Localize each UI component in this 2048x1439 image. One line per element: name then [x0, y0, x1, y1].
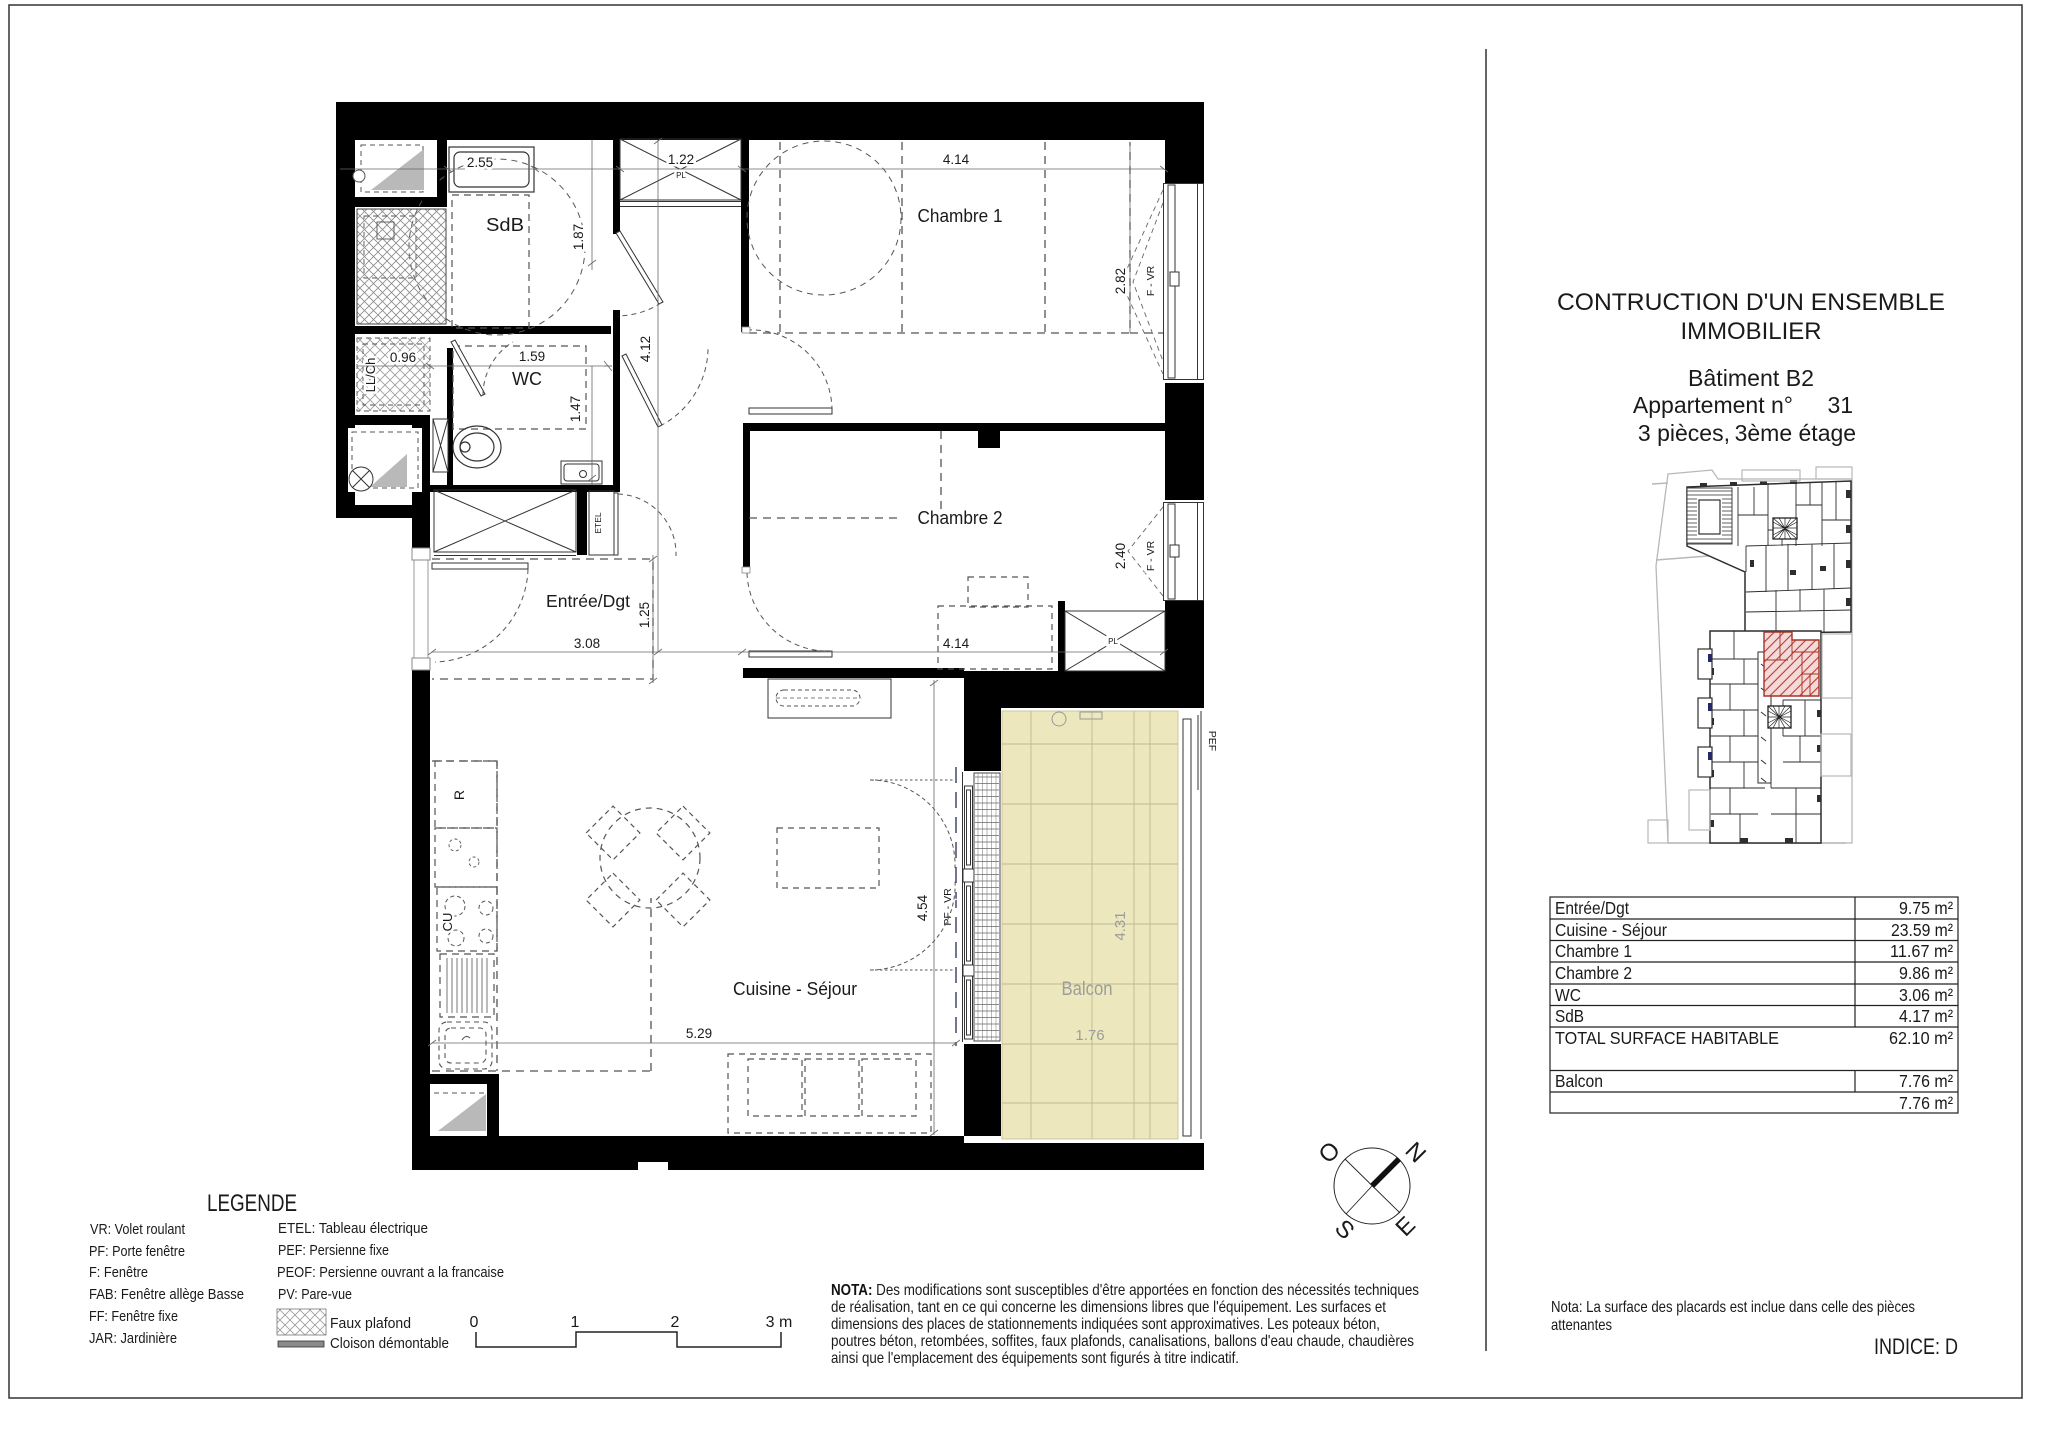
- svg-text:PEF: Persienne fixe: PEF: Persienne fixe: [278, 1242, 389, 1259]
- svg-text:0: 0: [470, 1314, 479, 1331]
- svg-text:4.14: 4.14: [943, 636, 970, 651]
- svg-text:Nota: La surface des placards: Nota: La surface des placards est inclue…: [1551, 1299, 1915, 1316]
- svg-text:11.67 m²: 11.67 m²: [1890, 941, 1953, 961]
- svg-text:1.47: 1.47: [568, 396, 583, 422]
- svg-text:1.22: 1.22: [668, 152, 694, 167]
- svg-text:4.54: 4.54: [915, 894, 930, 921]
- svg-text:3 pièces, 3ème étage: 3 pièces, 3ème étage: [1638, 420, 1856, 446]
- svg-text:IMMOBILIER: IMMOBILIER: [1681, 318, 1822, 345]
- svg-text:F - VR: F - VR: [1145, 265, 1157, 296]
- svg-text:2.55: 2.55: [467, 155, 493, 170]
- svg-text:attenantes: attenantes: [1551, 1317, 1612, 1334]
- svg-text:de réalisation, tant en ce qui: de réalisation, tant en ce qui concerne …: [831, 1299, 1386, 1316]
- svg-text:Cuisine - Séjour: Cuisine - Séjour: [1555, 920, 1667, 940]
- svg-text:3 m: 3 m: [766, 1314, 793, 1331]
- svg-text:Balcon: Balcon: [1062, 979, 1113, 1000]
- svg-text:CU: CU: [440, 913, 455, 932]
- svg-text:F - VR: F - VR: [1145, 540, 1157, 571]
- svg-text:Chambre 2: Chambre 2: [1555, 963, 1632, 983]
- svg-text:Entrée/Dgt: Entrée/Dgt: [1555, 898, 1629, 918]
- svg-text:CONTRUCTION D'UN ENSEMBLE: CONTRUCTION D'UN ENSEMBLE: [1557, 289, 1945, 316]
- svg-text:poutres béton, retombées, soff: poutres béton, retombées, soffites, faux…: [831, 1333, 1414, 1350]
- svg-text:1.25: 1.25: [637, 602, 652, 628]
- svg-text:LL/Ch: LL/Ch: [363, 358, 378, 393]
- svg-text:Chambre 1: Chambre 1: [1555, 941, 1632, 961]
- svg-text:SdB: SdB: [1555, 1006, 1584, 1026]
- svg-text:1.87: 1.87: [571, 224, 586, 250]
- svg-text:9.86 m²: 9.86 m²: [1899, 963, 1953, 983]
- svg-text:FAB: Fenêtre allège Basse: FAB: Fenêtre allège Basse: [89, 1286, 244, 1303]
- svg-text:4.12: 4.12: [638, 336, 653, 362]
- svg-text:1.76: 1.76: [1075, 1027, 1104, 1044]
- svg-text:Cloison démontable: Cloison démontable: [330, 1335, 449, 1352]
- svg-text:1: 1: [571, 1314, 580, 1331]
- svg-text:Cuisine - Séjour: Cuisine - Séjour: [733, 979, 857, 999]
- svg-text:5.29: 5.29: [686, 1026, 712, 1041]
- svg-text:FF: Fenêtre fixe: FF: Fenêtre fixe: [89, 1308, 178, 1325]
- svg-text:7.76 m²: 7.76 m²: [1899, 1093, 1953, 1113]
- svg-text:Chambre 1: Chambre 1: [918, 206, 1003, 226]
- svg-text:PF - VR: PF - VR: [942, 888, 954, 926]
- svg-text:2.82: 2.82: [1113, 268, 1128, 294]
- svg-text:PV: Pare-vue: PV: Pare-vue: [278, 1286, 352, 1303]
- svg-text:WC: WC: [512, 369, 542, 389]
- svg-text:LEGENDE: LEGENDE: [207, 1190, 297, 1217]
- svg-text:R: R: [451, 790, 467, 800]
- svg-text:3.08: 3.08: [574, 636, 600, 651]
- svg-text:Faux plafond: Faux plafond: [330, 1315, 411, 1332]
- svg-text:4.31: 4.31: [1112, 911, 1129, 940]
- svg-text:TOTAL SURFACE HABITABLE: TOTAL SURFACE HABITABLE: [1555, 1028, 1779, 1048]
- svg-text:VR: Volet roulant: VR: Volet roulant: [90, 1221, 186, 1238]
- svg-text:62.10 m²: 62.10 m²: [1889, 1028, 1953, 1048]
- svg-text:3.06 m²: 3.06 m²: [1899, 985, 1953, 1005]
- svg-text:dimensions des places de stati: dimensions des places de stationnements …: [831, 1316, 1380, 1333]
- svg-text:9.75 m²: 9.75 m²: [1899, 898, 1953, 918]
- svg-text:F: Fenêtre: F: Fenêtre: [89, 1264, 148, 1281]
- svg-text:JAR: Jardinière: JAR: Jardinière: [89, 1330, 177, 1347]
- svg-text:23.59 m²: 23.59 m²: [1891, 920, 1953, 940]
- svg-text:Entrée/Dgt: Entrée/Dgt: [546, 591, 630, 611]
- svg-text:SdB: SdB: [486, 215, 524, 235]
- svg-text:PEOF: Persienne ouvrant a la f: PEOF: Persienne ouvrant a la francaise: [277, 1264, 504, 1281]
- svg-text:2: 2: [671, 1314, 680, 1331]
- svg-text:PEF: PEF: [1206, 731, 1218, 751]
- svg-text:WC: WC: [1555, 985, 1581, 1005]
- svg-text:ETEL: ETEL: [593, 512, 603, 534]
- svg-text:7.76 m²: 7.76 m²: [1899, 1071, 1953, 1091]
- svg-text:4.17 m²: 4.17 m²: [1899, 1006, 1953, 1026]
- svg-text:2.40: 2.40: [1113, 543, 1128, 569]
- svg-text:INDICE: D: INDICE: D: [1874, 1334, 1958, 1359]
- svg-text:ainsi que l'emplacement des éq: ainsi que l'emplacement des équipements …: [831, 1350, 1239, 1367]
- svg-text:PL: PL: [1108, 637, 1118, 646]
- svg-text:Chambre 2: Chambre 2: [918, 508, 1003, 528]
- svg-text:ETEL: Tableau électrique: ETEL: Tableau électrique: [278, 1220, 428, 1237]
- svg-text:NOTA: Des modifications sont: NOTA: Des modifications sont susceptible…: [831, 1282, 1419, 1299]
- svg-text:Bâtiment B2: Bâtiment B2: [1688, 365, 1814, 391]
- svg-text:Balcon: Balcon: [1555, 1071, 1603, 1091]
- svg-text:PL: PL: [676, 171, 686, 180]
- svg-text:0.96: 0.96: [390, 350, 416, 365]
- svg-text:1.59: 1.59: [519, 349, 545, 364]
- svg-text:Appartement n° 31: Appartement n° 31: [1633, 392, 1853, 418]
- svg-text:PF: Porte fenêtre: PF: Porte fenêtre: [89, 1243, 185, 1260]
- svg-text:4.14: 4.14: [943, 152, 970, 167]
